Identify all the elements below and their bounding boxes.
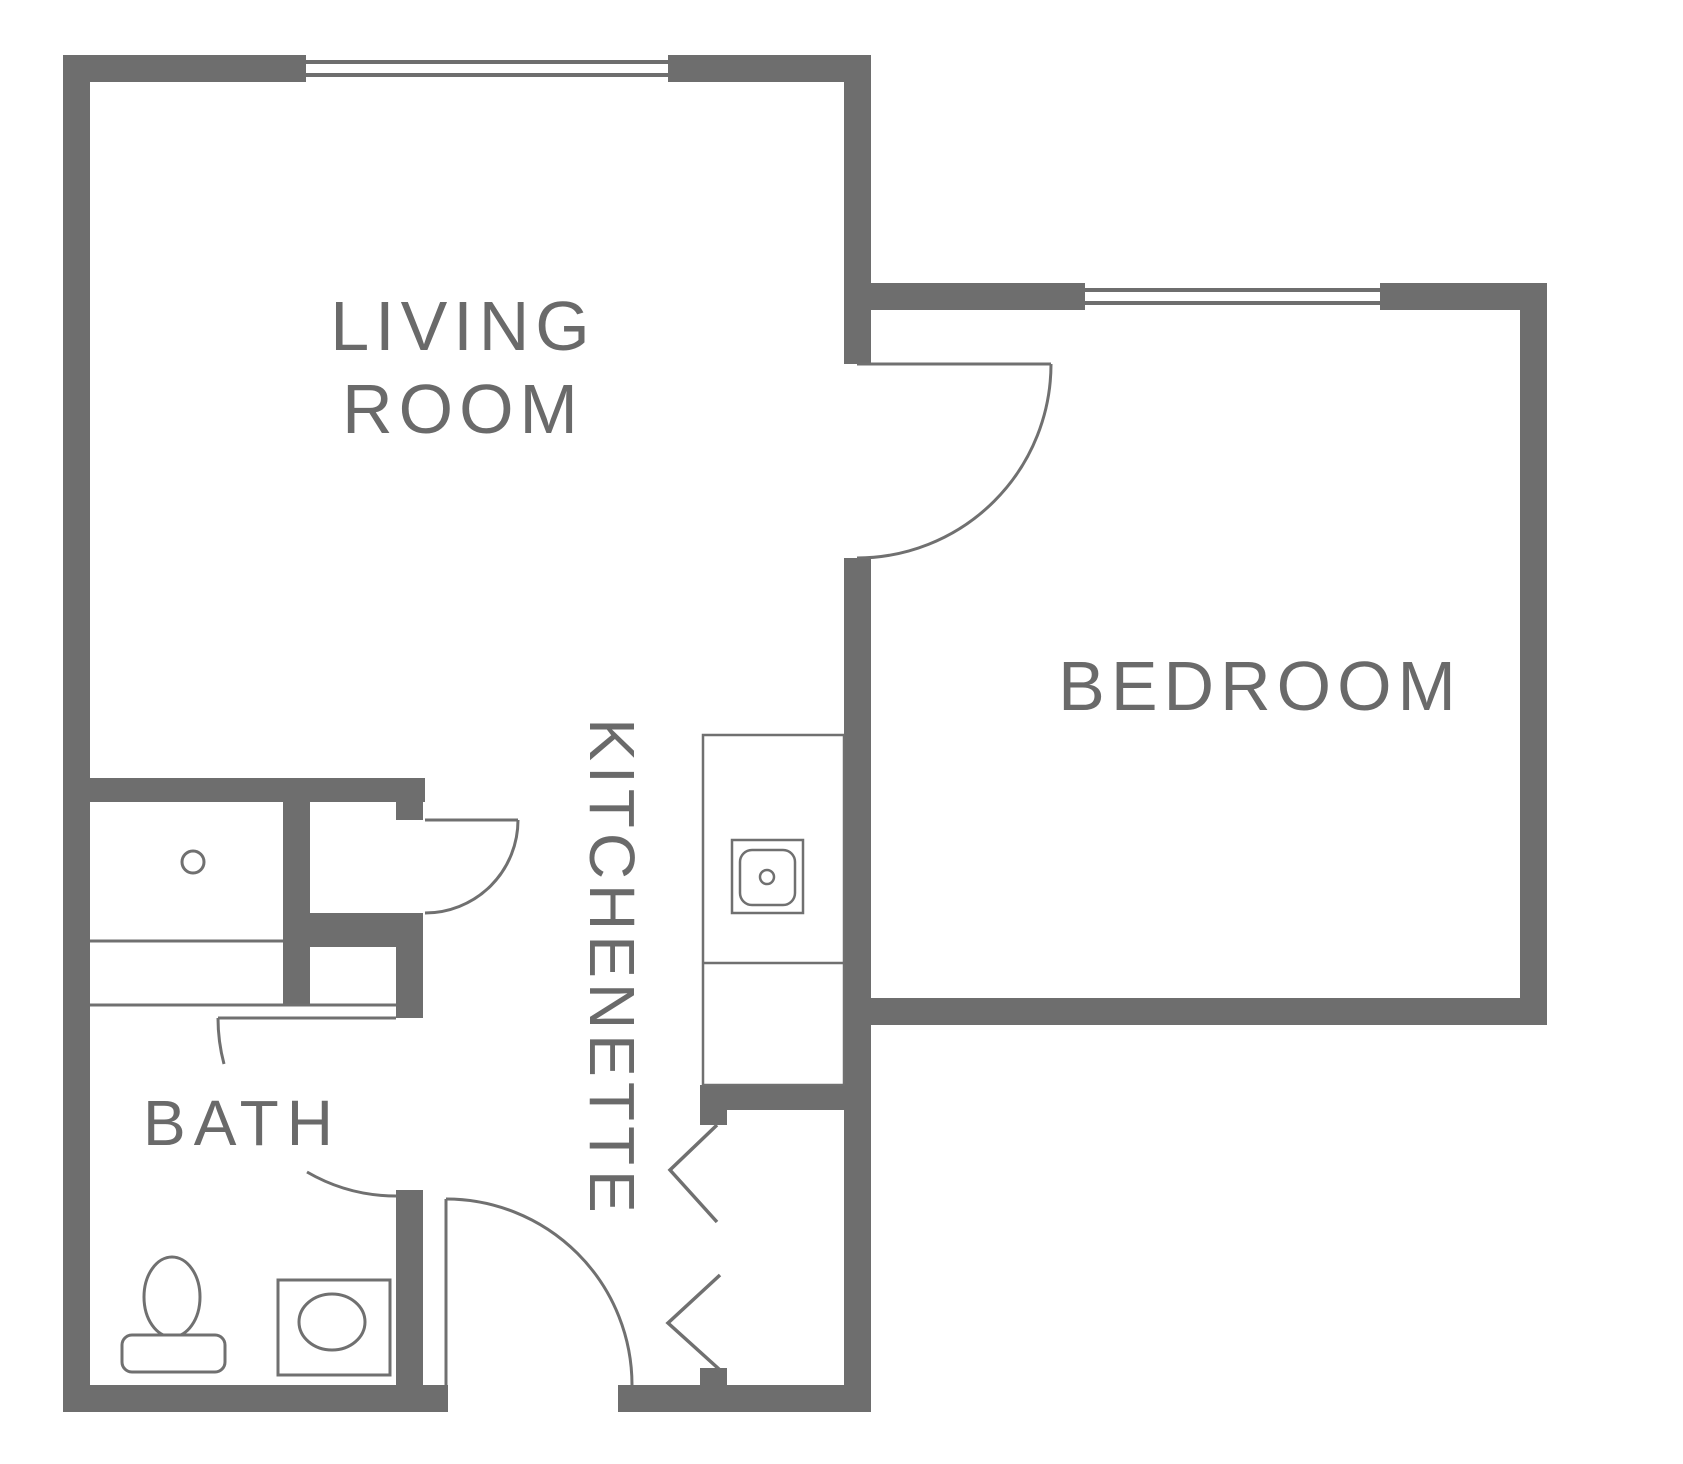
- living-room-label-line1: LIVING: [330, 287, 596, 365]
- shower-right-wall: [283, 802, 310, 1005]
- living-top-wall-right: [668, 55, 871, 82]
- kitchen-closet-bifold: [668, 1125, 720, 1370]
- bedroom-label: BEDROOM: [1058, 647, 1462, 725]
- left-outer-wall: [63, 55, 90, 1412]
- window-line: [1085, 288, 1380, 292]
- bathroom-sink: [278, 1280, 390, 1375]
- bedroom-right-wall: [1520, 283, 1547, 1025]
- bedroom-window: [1085, 288, 1380, 305]
- kitchenette-label: KITCHENETTE: [576, 718, 648, 1217]
- bedroom-bottom-wall: [871, 998, 1547, 1025]
- closet-door-arc: [425, 820, 518, 913]
- floor-plan-svg: LIVING ROOM BEDROOM KITCHENETTE BATH: [0, 0, 1683, 1464]
- shower: [90, 851, 283, 941]
- walls: [63, 55, 1547, 1412]
- bottom-wall-west: [63, 1385, 448, 1412]
- bifold-chevron-icon: [668, 1275, 720, 1370]
- counter-outline: [703, 735, 844, 1085]
- toilet-tank: [122, 1335, 225, 1372]
- bedroom-door-arc: [857, 364, 1051, 558]
- kitchen-sink-basin: [740, 850, 795, 905]
- bottom-wall-mid: [618, 1385, 871, 1412]
- closet-jamb-top: [396, 802, 423, 820]
- bath-label: BATH: [143, 1087, 341, 1159]
- living-room-label-line2: ROOM: [342, 370, 584, 448]
- window-line: [1085, 301, 1380, 305]
- bath-right-wall: [396, 1190, 423, 1412]
- kitchen-sink-drain-icon: [760, 870, 774, 884]
- window-line: [306, 60, 668, 64]
- bedroom-door: [857, 364, 1051, 558]
- entry-door-arc: [446, 1199, 632, 1385]
- floor-plan-page: LIVING ROOM BEDROOM KITCHENETTE BATH: [0, 0, 1683, 1464]
- living-top-wall-left: [63, 55, 306, 82]
- bedroom-top-wall-left: [871, 283, 1085, 310]
- spine-wall-upper: [844, 55, 871, 364]
- bathroom-sink-basin: [299, 1294, 365, 1350]
- toilet-bowl: [144, 1257, 200, 1337]
- spine-wall-lower: [844, 558, 871, 1410]
- bath-door-arc-upper: [218, 1018, 224, 1064]
- bath-top-wall: [90, 778, 425, 802]
- window-line: [306, 73, 668, 77]
- closet-door: [425, 820, 518, 913]
- kitchen-counter: [703, 735, 844, 1085]
- closet-nook-bottom-wall: [310, 913, 396, 947]
- toilet: [122, 1257, 225, 1372]
- kitchen-closet-jamb-lower: [700, 1368, 727, 1385]
- kitchen-closet-jamb-upper: [700, 1110, 727, 1125]
- entry-door: [446, 1199, 632, 1385]
- living-room-window: [306, 60, 668, 77]
- closet-jamb-column: [396, 913, 423, 1018]
- bath-door-arc-lower: [307, 1172, 396, 1196]
- bifold-chevron-icon: [670, 1125, 717, 1222]
- kitchenette-stub-wall: [700, 1085, 844, 1110]
- shower-drain-icon: [182, 851, 204, 873]
